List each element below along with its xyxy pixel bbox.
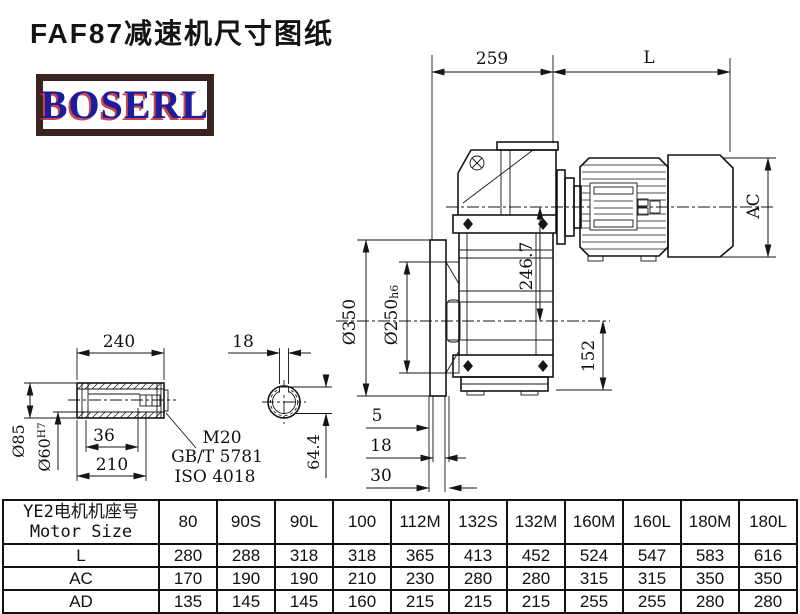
column-header: 90L <box>275 500 333 544</box>
dim-240: 240 <box>103 332 135 352</box>
cell: 413 <box>449 544 507 567</box>
row-label: AD <box>3 590 159 613</box>
dim-18-keyway: 18 <box>232 332 254 352</box>
cell: 255 <box>623 590 681 613</box>
bolt-icon <box>538 360 548 372</box>
dim-L: L <box>643 48 654 68</box>
dim-64-4: 64.4 <box>304 434 323 470</box>
cell: 215 <box>391 590 449 613</box>
drawing-sheet: FAF87减速机尺寸图纸 BOSERL <box>0 0 800 614</box>
main-view-dimensions: 259 L AC 246.7 Ø350 Ø250h6 152 <box>340 48 776 488</box>
thread-label: M20 <box>202 428 241 448</box>
column-header: 180M <box>681 500 739 544</box>
cell: 135 <box>159 590 217 613</box>
dim-60H7: Ø60H7 <box>35 422 54 471</box>
shaft-detail-view: 240 Ø85 Ø60H7 36 210 M20 GB/T 5781 ISO 4… <box>9 332 263 487</box>
header-cn: YE2电机机座号 <box>4 502 158 522</box>
standard-gb: GB/T 5781 <box>171 447 263 467</box>
table-row-AC: AC 170 190 190 210 230 280 280 315 315 3… <box>3 567 797 590</box>
cell: 210 <box>333 567 391 590</box>
fan-cowl <box>668 155 733 257</box>
cell: 230 <box>391 567 449 590</box>
column-header: 160M <box>565 500 623 544</box>
column-header: 112M <box>391 500 449 544</box>
section-hatching <box>78 383 161 418</box>
output-flange <box>429 240 460 492</box>
table-row-L: L 280 288 318 318 365 413 452 524 547 58… <box>3 544 797 567</box>
cell: 280 <box>507 567 565 590</box>
dim-5: 5 <box>372 406 383 426</box>
cell: 315 <box>565 567 623 590</box>
row-label: AC <box>3 567 159 590</box>
cell: 583 <box>681 544 739 567</box>
cell: 365 <box>391 544 449 567</box>
cell: 160 <box>333 590 391 613</box>
column-header: 90S <box>217 500 275 544</box>
cell: 215 <box>507 590 565 613</box>
bolt-icon <box>463 218 473 230</box>
dim-AC: AC <box>744 193 764 219</box>
cell: 318 <box>333 544 391 567</box>
dim-30: 30 <box>370 466 392 486</box>
cell: 350 <box>681 567 739 590</box>
motor-size-table: YE2电机机座号 Motor Size 80 90S 90L 100 112M … <box>2 499 798 614</box>
cell: 452 <box>507 544 565 567</box>
cell: 280 <box>739 590 797 613</box>
cell: 280 <box>159 544 217 567</box>
dimension-drawing: 259 L AC 246.7 Ø350 Ø250h6 152 <box>0 0 800 498</box>
cell: 288 <box>217 544 275 567</box>
dim-210: 210 <box>96 455 128 475</box>
dim-350: Ø350 <box>340 299 360 345</box>
gearbox-housing <box>448 142 558 395</box>
cell: 145 <box>275 590 333 613</box>
table-header-row: YE2电机机座号 Motor Size 80 90S 90L 100 112M … <box>3 500 797 544</box>
dim-36: 36 <box>93 426 115 446</box>
dim-246-7: 246.7 <box>517 242 537 291</box>
column-header: 132M <box>507 500 565 544</box>
cell: 315 <box>623 567 681 590</box>
motor-nameplate <box>590 183 637 230</box>
column-header: 80 <box>159 500 217 544</box>
cell: 145 <box>217 590 275 613</box>
cell: 318 <box>275 544 333 567</box>
dim-152: 152 <box>579 340 599 372</box>
bolt-icon <box>463 360 473 372</box>
cell: 524 <box>565 544 623 567</box>
standard-iso: ISO 4018 <box>175 467 256 487</box>
cell: 280 <box>681 590 739 613</box>
dim-259: 259 <box>476 49 508 69</box>
cell: 616 <box>739 544 797 567</box>
dim-18-flange: 18 <box>370 436 392 456</box>
table-row-AD: AD 135 145 145 160 215 215 215 255 255 2… <box>3 590 797 613</box>
column-header: 100 <box>333 500 391 544</box>
cell: 255 <box>565 590 623 613</box>
cell: 190 <box>217 567 275 590</box>
column-header: 180L <box>739 500 797 544</box>
header-en: Motor Size <box>4 522 158 542</box>
dim-250h6: Ø250h6 <box>382 285 402 345</box>
motor <box>557 155 733 261</box>
cell: 170 <box>159 567 217 590</box>
column-header: 160L <box>623 500 681 544</box>
cell: 350 <box>739 567 797 590</box>
cell: 280 <box>449 567 507 590</box>
cell: 215 <box>449 590 507 613</box>
table-header-cell: YE2电机机座号 Motor Size <box>3 500 159 544</box>
cell: 547 <box>623 544 681 567</box>
row-label: L <box>3 544 159 567</box>
cell: 190 <box>275 567 333 590</box>
dim-85: Ø85 <box>9 424 28 457</box>
column-header: 132S <box>449 500 507 544</box>
